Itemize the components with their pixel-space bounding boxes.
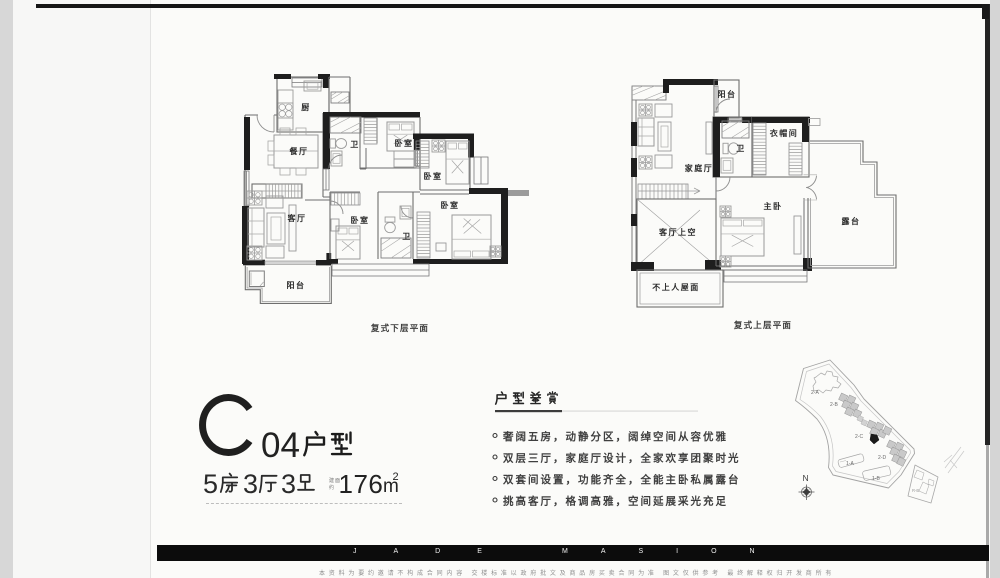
svg-text:2: 2 [393, 471, 399, 483]
svg-text:约: 约 [329, 484, 335, 491]
svg-text:挑高客厅，格调高雅，空间延展采光充足: 挑高客厅，格调高雅，空间延展采光充足 [503, 495, 728, 508]
svg-text:04: 04 [261, 426, 300, 465]
svg-text:奢阔五房，动静分区，阔绰空间从容优雅: 奢阔五房，动静分区，阔绰空间从容优雅 [502, 430, 728, 443]
svg-text:3: 3 [243, 469, 258, 499]
svg-text:3: 3 [281, 469, 296, 499]
svg-text:5: 5 [203, 469, 218, 499]
svg-text:双层三厅，家庭厅设计，全家欢享团聚时光: 双层三厅，家庭厅设计，全家欢享团聚时光 [502, 452, 741, 465]
svg-text:176: 176 [339, 469, 384, 499]
svg-text:双套间设置，功能齐全，全能主卧私属露台: 双套间设置，功能齐全，全能主卧私属露台 [502, 473, 741, 486]
